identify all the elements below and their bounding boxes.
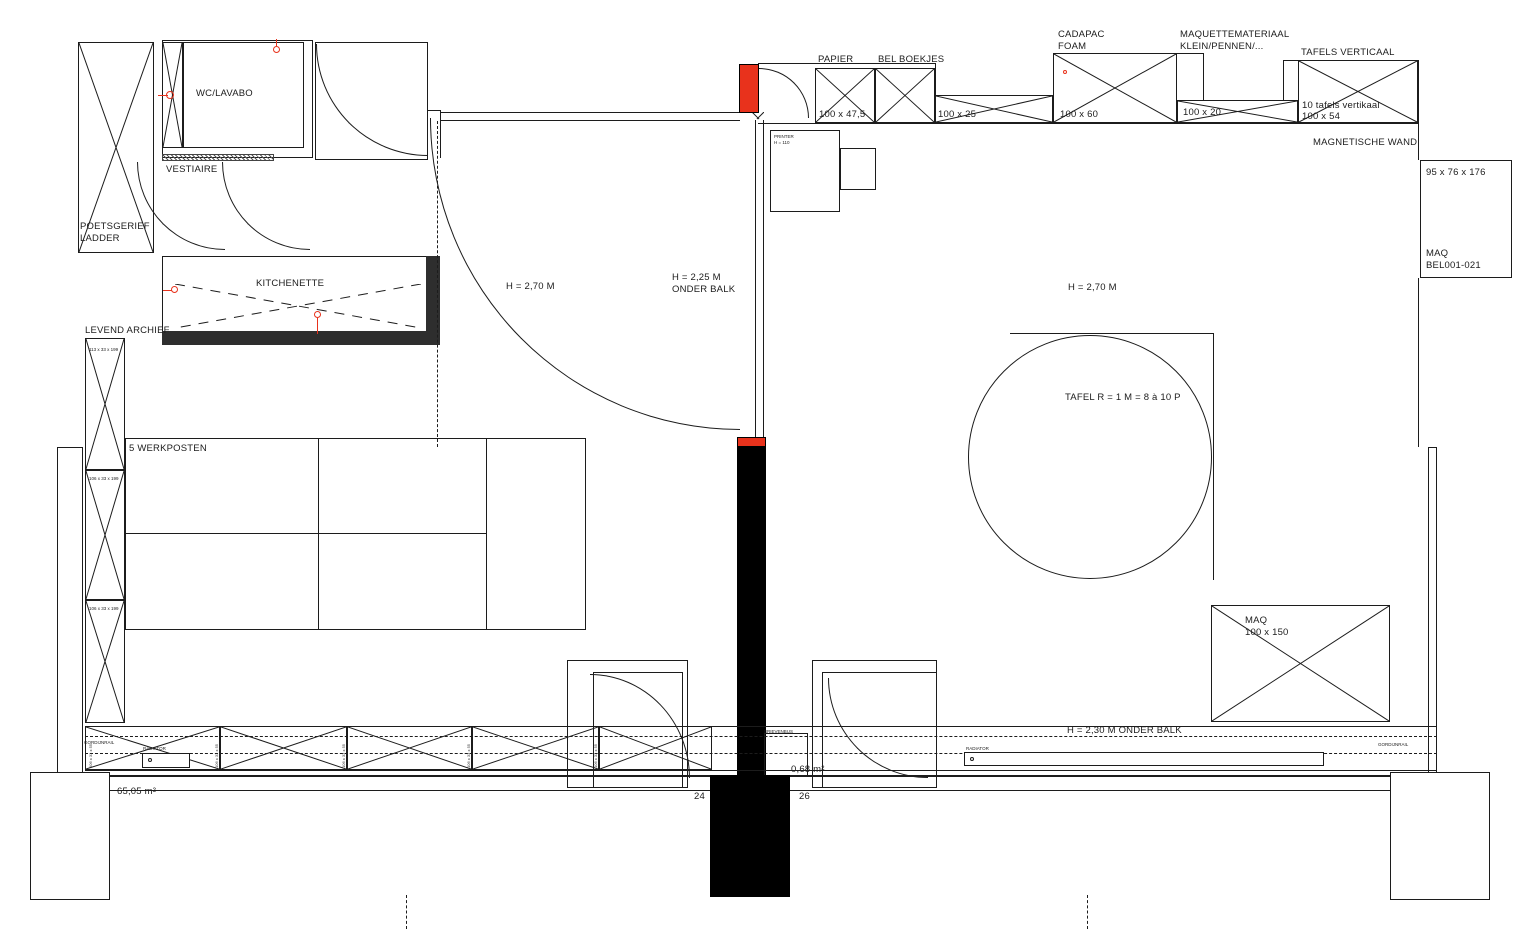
round-table [968,335,1212,579]
desk-divider [125,533,486,534]
cadapac-label-line2: FOAM [1058,41,1086,52]
radiator [964,752,1324,766]
tafels-sub2: 100 x 54 [1302,111,1340,122]
light-symbol-icon [1063,70,1067,74]
area-label: 0,68 m² [791,764,825,775]
radiator-label: RADIATOR [966,746,989,752]
pier-left [30,772,110,900]
kitchenette-thick-wall-bottom [162,331,440,345]
radiator-valve-icon [148,758,152,762]
centerline-tick [406,895,407,929]
light-symbol-stem [276,39,277,46]
sill-cabinet [220,726,347,770]
radiator-label: RADIATOR [143,746,166,752]
maq-table-dim: 100 x 150 [1245,627,1289,638]
archief-cabinet-dim: 106 x 33 x 199 [89,606,119,612]
floor-plan: POETSGERIEF LADDER WC/LAVABO VESTIAIRE K… [0,0,1536,929]
maq-shelf-label-line2: BEL001-021 [1426,260,1481,271]
height-label-line1: H = 2,25 M [672,272,721,283]
glass-partition [755,120,764,445]
maquette-label-line1: MAQUETTEMATERIAAL [1180,29,1289,40]
light-symbol-stem [158,95,168,96]
boekjes-shelf [875,68,935,123]
maq-table-label: MAQ [1245,615,1267,626]
kitchenette-counter-dashed [175,284,421,328]
table-corner-line [1010,333,1213,334]
papier-dim: 100 x 47,5 [819,109,865,120]
window-band-bottom [85,770,1437,771]
height-label: H = 2,30 M ONDER BALK [1067,725,1182,736]
werkposten-label: 5 WERKPOSTEN [129,443,207,454]
magnetische-wand-label: MAGNETISCHE WAND [1313,137,1417,148]
area-label: 65,05 m² [117,786,156,797]
sill-cabinet-dim: 106 x 33 x 55 [466,730,471,768]
werkposten-desks [125,438,586,630]
archief-cabinet-dim: 106 x 33 x 199 [89,476,119,482]
light-symbol-icon [171,286,178,293]
red-wall-element [737,437,766,447]
structural-column [710,775,790,897]
light-symbol-stem [317,318,318,334]
printer-label-line2: H = 110 [774,140,790,146]
grid-mark: 24 [694,791,705,802]
left-outer-wall [57,447,83,775]
low-shelf-dim: 100 x 25 [938,109,976,120]
archief-cabinet [85,338,125,470]
wc-label: WC/LAVABO [196,88,253,99]
levend-archief-label: LEVEND ARCHIEF [85,325,170,336]
door-arc [759,68,809,118]
archief-cabinet-dim: 113 x 33 x 199 [89,347,118,353]
sill-cabinet [347,726,472,770]
right-outer-wall [1428,447,1437,778]
wall-step [1203,53,1204,100]
wall-step [1283,60,1284,100]
printer-side-table [840,148,876,190]
poetsgerief-label-line1: POETSGERIEF [80,221,150,232]
light-symbol-icon [314,311,321,318]
sill-cabinet-dim: 106 x 33 x 55 [214,730,219,768]
wall-step [935,63,936,95]
hatched-wall [162,154,274,161]
tafels-sub1: 10 tafels vertikaal [1302,100,1380,111]
papier-label: PAPIER [818,54,853,65]
sill-cabinet-dim: 106 x 33 x 55 [341,730,346,768]
gordijnrail-label: GORDIJNRAIL [84,740,114,746]
desk-divider [318,438,319,630]
tafels-verticaal-label: TAFELS VERTICAAL [1301,47,1395,58]
wall-step [1283,60,1299,61]
radiator-valve-icon [970,757,974,761]
height-label: H = 2,70 M [1068,282,1117,293]
cadapac-label-line1: CADAPAC [1058,29,1105,40]
height-label: H = 2,70 M [506,281,555,292]
maquette-label-line2: KLEIN/PENNEN/... [1180,41,1263,52]
light-symbol-stem [163,290,172,291]
door-niche-inner [822,672,937,673]
archief-cabinet [85,470,125,600]
grid-mark: 26 [799,791,810,802]
gordijnrail-label: GORDIJNRAIL [1378,742,1408,748]
poetsgerief-label-line2: LADDER [80,233,120,244]
vestiaire-door-arc [222,162,310,250]
red-wall-element [739,64,759,113]
printer-label-line1: PRINTER [774,134,794,140]
maq-shelf-dim: 95 x 76 x 176 [1426,167,1486,178]
wall-step [428,110,440,111]
maq-table [1211,605,1390,722]
maq-shelf-label-line1: MAQ [1426,248,1448,259]
table-corner-line [1213,333,1214,580]
sill-cabinet-dim: 106 x 33 x 55 [88,730,93,768]
archief-cabinet [85,600,125,723]
right-wall [1418,278,1419,447]
wall-step [1177,53,1204,54]
light-symbol-icon [273,46,280,53]
height-label-line2: ONDER BALK [672,284,735,295]
round-table-label: TAFEL R = 1 M = 8 à 10 P [1065,392,1181,403]
centerline-tick [1087,895,1088,929]
cadapac-dim: 100 x 60 [1060,109,1098,120]
kitchenette-label: KITCHENETTE [256,278,324,289]
maquette-dim: 100 x 20 [1183,107,1221,118]
shelf-face-line [758,123,1418,124]
desk-divider [486,438,487,630]
pier-right [1390,772,1490,900]
right-wall [1418,60,1419,160]
